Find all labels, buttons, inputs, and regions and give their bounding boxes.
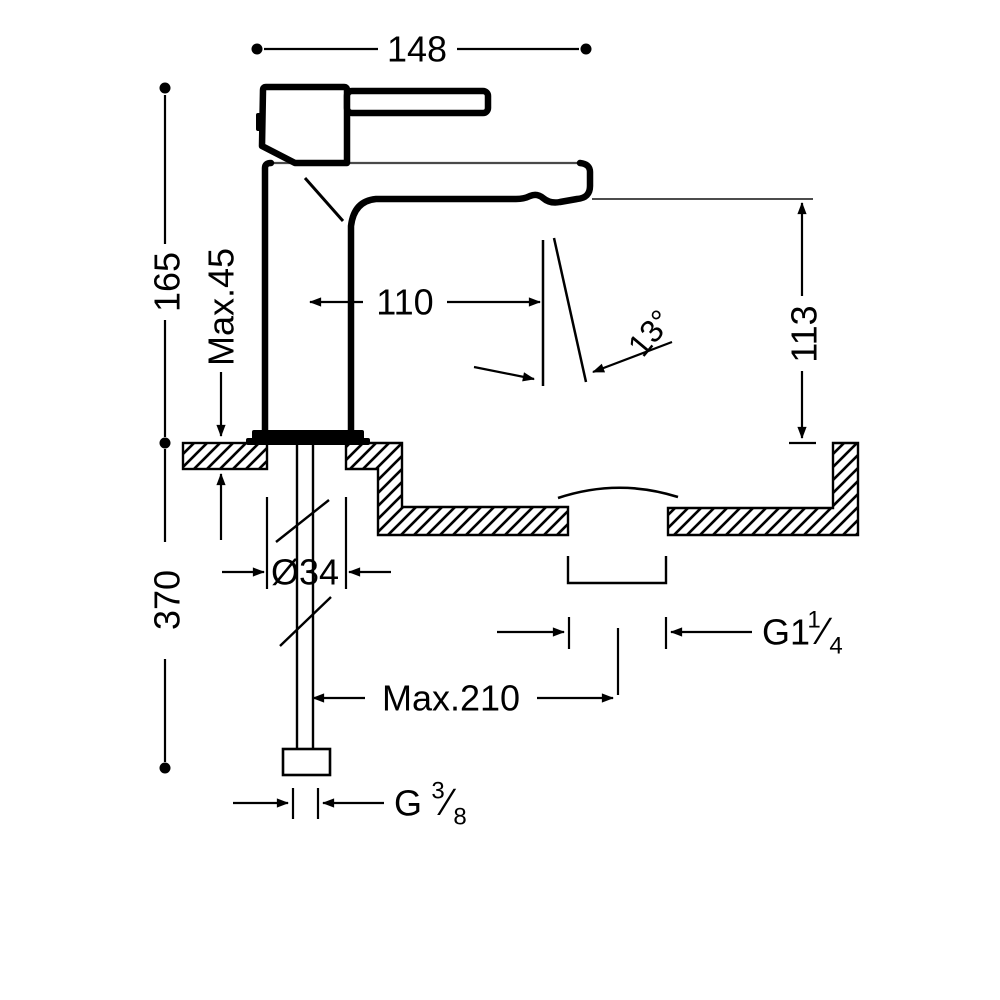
dim-g114-denominator: 4 [829, 633, 842, 660]
dim-13deg-arrow-small [474, 367, 534, 379]
dim-g114-prefix: G1 [762, 612, 810, 653]
dim-g114: G1 1 ⁄ 4 [497, 607, 843, 696]
drain-dome-curve [558, 488, 678, 498]
drain-tailpiece [568, 556, 666, 583]
faucet-cartridge-head [262, 87, 347, 163]
head-pivot-nub [256, 113, 263, 131]
dim-max45: Max.45 [201, 248, 242, 540]
supply-connector-block [283, 749, 330, 775]
dimension-drawing: 148 165 Max.45 110 13° 113 [0, 0, 1000, 1000]
dim-148-dot-left [252, 44, 263, 55]
dim-148: 148 [252, 29, 592, 70]
stream-angled-line [554, 238, 586, 382]
dim-o34: Ø34 [222, 497, 391, 593]
hose-break-line-lower [280, 597, 331, 646]
dim-13deg-label: 13° [621, 303, 680, 363]
dim-165-dot-top [160, 83, 171, 94]
dim-g38: G 3 ⁄ 8 [233, 778, 467, 831]
dim-g38-prefix: G [394, 783, 422, 824]
stream-reference-lines [543, 238, 586, 386]
hose-break-line-upper [276, 500, 329, 542]
dim-370-dot-bottom [160, 763, 171, 774]
dim-113-label: 113 [784, 305, 825, 362]
dim-g38-numerator: 3 [431, 778, 444, 805]
dim-110-label: 110 [376, 282, 433, 323]
handle-lever [347, 91, 488, 113]
dim-165-label: 165 [147, 252, 188, 312]
dim-370: 370 [147, 449, 188, 774]
supply-pipe-assembly [276, 445, 331, 775]
dim-g114-numerator: 1 [807, 607, 820, 634]
dim-max210-label: Max.210 [382, 678, 520, 719]
dim-148-dot-right [581, 44, 592, 55]
faucet-body [256, 87, 590, 437]
dim-113: 113 [592, 199, 825, 443]
dim-o34-label: Ø34 [271, 552, 339, 593]
flange-base [246, 438, 370, 445]
dim-max45-label: Max.45 [201, 248, 242, 366]
mounting-flange [246, 430, 370, 445]
technical-drawing-page: 148 165 Max.45 110 13° 113 [0, 0, 1000, 1000]
dim-165: 165 [147, 83, 188, 449]
dim-165-dot-bottom [160, 438, 171, 449]
dim-370-label: 370 [147, 570, 188, 630]
sink-section-middle [346, 443, 568, 535]
sink-section-right [668, 443, 858, 535]
dim-g38-denominator: 8 [453, 804, 466, 831]
dim-148-label: 148 [387, 29, 447, 70]
dim-max210: Max.210 [313, 678, 613, 719]
countertop-left-section [183, 443, 267, 469]
